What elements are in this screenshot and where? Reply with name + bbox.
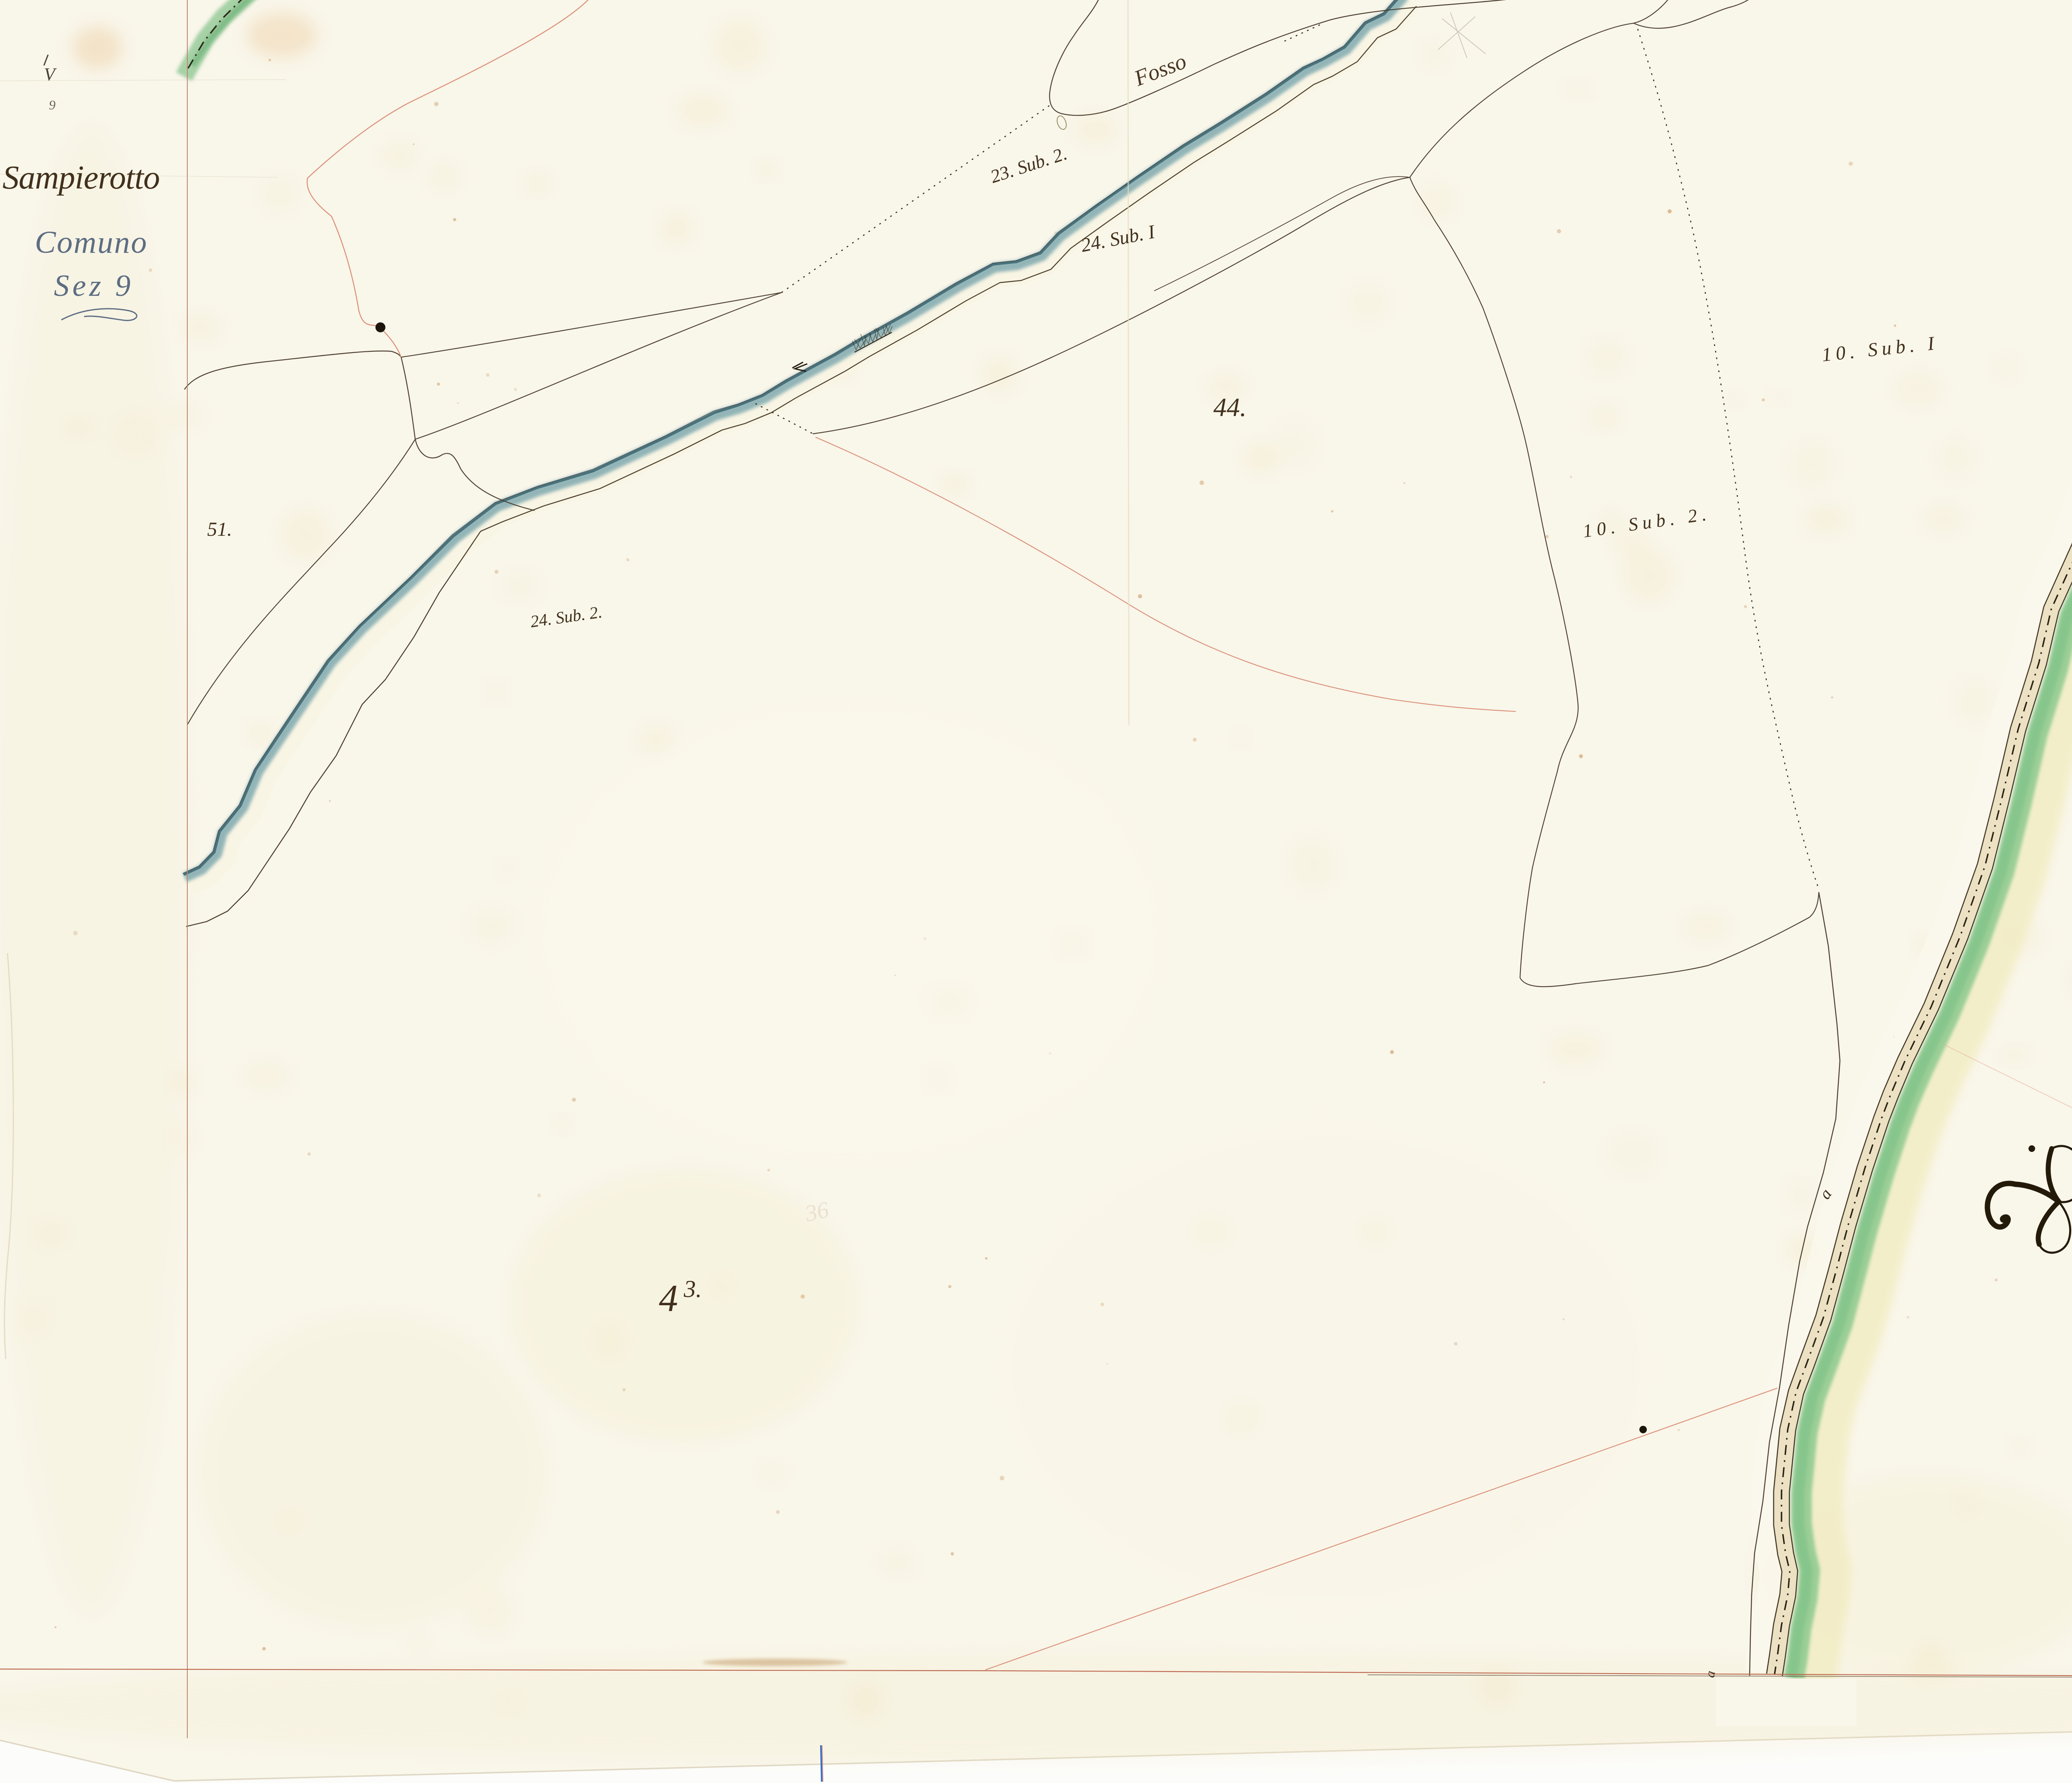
svg-text:51.: 51. xyxy=(207,518,232,540)
svg-text:44.: 44. xyxy=(1213,392,1247,422)
svg-text:Sampierotto: Sampierotto xyxy=(2,160,160,196)
svg-text:Sez 9: Sez 9 xyxy=(54,269,131,303)
svg-text:9: 9 xyxy=(49,97,56,112)
svg-text:4: 4 xyxy=(659,1277,678,1319)
svg-text:Comuno: Comuno xyxy=(35,225,147,260)
svg-text:3.: 3. xyxy=(683,1275,702,1302)
